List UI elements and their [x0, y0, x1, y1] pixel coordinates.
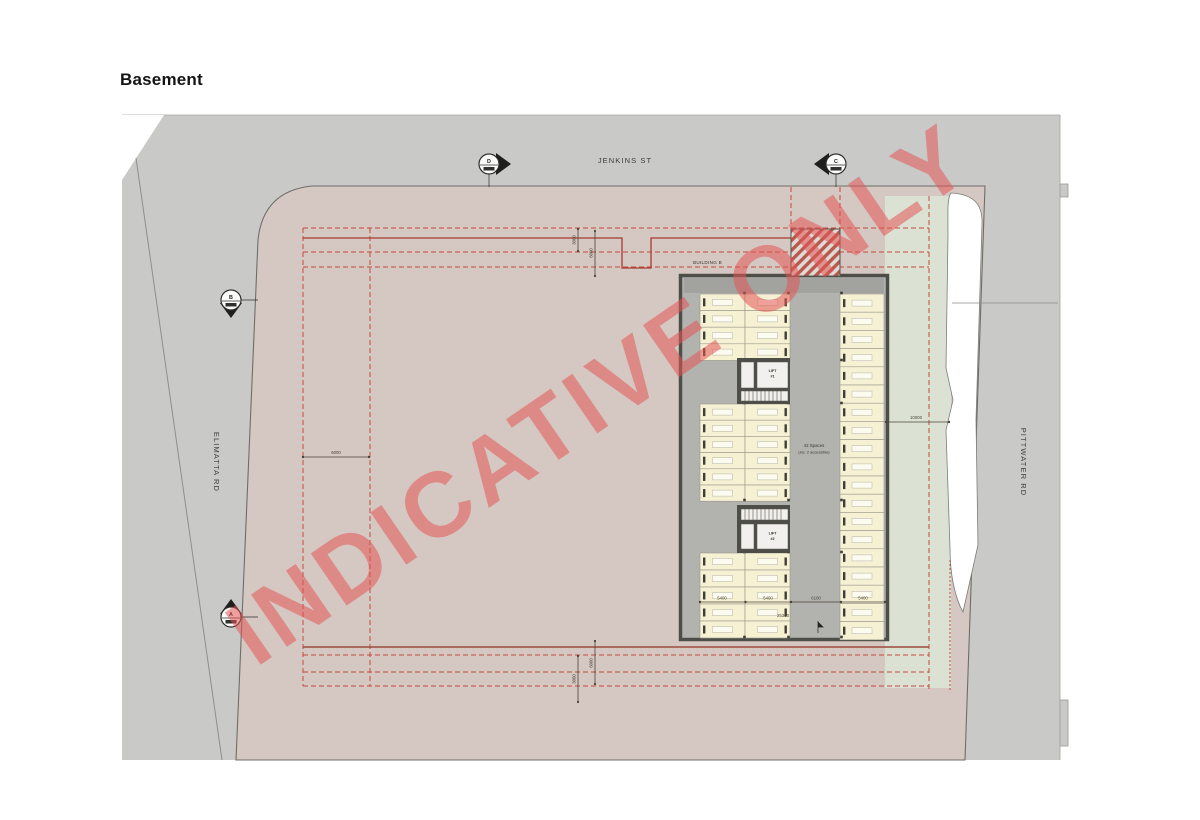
bay-marking — [713, 559, 733, 565]
wheel-stop — [843, 408, 845, 416]
road-edge-tab — [1060, 700, 1068, 746]
wheel-stop — [703, 558, 705, 566]
bay-marking — [758, 627, 778, 633]
marker-letter: A — [229, 612, 233, 618]
wheel-stop — [785, 408, 787, 416]
building-b: LIFT #1 LIFT #2 BUILDING B 42 Spaces (in… — [681, 229, 888, 640]
wheel-stop — [703, 575, 705, 583]
marker-letter: B — [229, 295, 233, 301]
bay-marking — [852, 428, 872, 434]
dim-stall-1: 5400 — [717, 596, 727, 601]
bay-marking — [758, 299, 778, 305]
marker-sheet-ref — [484, 167, 495, 171]
bay-marking — [758, 474, 778, 480]
column-dot — [840, 402, 843, 405]
marker-sheet-ref — [226, 620, 237, 624]
wheel-stop — [785, 575, 787, 583]
wheel-stop — [703, 332, 705, 340]
bay-marking — [852, 555, 872, 561]
wheel-stop — [785, 298, 787, 306]
dim-east-strip: 10000 — [910, 415, 923, 420]
road-label-elimatta: ELIMATTA RD — [212, 432, 221, 492]
bay-marking — [852, 318, 872, 324]
column-dot — [787, 499, 790, 502]
wheel-stop — [843, 372, 845, 380]
marker-sheet-ref — [226, 303, 237, 307]
wheel-stop — [843, 463, 845, 471]
bay-marking — [852, 537, 872, 543]
road-label-pittwater: PITTWATER RD — [1019, 428, 1028, 497]
building-label: BUILDING B — [693, 260, 722, 265]
bay-marking — [852, 519, 872, 525]
bay-marking — [852, 500, 872, 506]
wheel-stop — [703, 315, 705, 323]
wheel-stop — [843, 499, 845, 507]
lift-2-number: #2 — [770, 537, 774, 541]
bay-marking — [713, 442, 733, 448]
wheel-stop — [843, 354, 845, 362]
wheel-stop — [703, 473, 705, 481]
wheel-stop — [703, 298, 705, 306]
bay-marking — [852, 355, 872, 361]
wheel-stop — [843, 481, 845, 489]
bay-marking — [713, 333, 733, 339]
wheel-stop — [843, 609, 845, 617]
wheel-stop — [703, 424, 705, 432]
core-lift-2: LIFT #2 — [737, 505, 790, 553]
bay-marking — [713, 299, 733, 305]
bay-marking — [713, 576, 733, 582]
wheel-stop — [843, 572, 845, 580]
dim-west-setback: 6000 — [331, 450, 341, 455]
lift-2-label: LIFT — [769, 532, 778, 536]
bay-marking — [852, 610, 872, 616]
dim-south-b: 3000 — [572, 674, 577, 684]
bay-marking — [852, 573, 872, 579]
site-plan: LIFT #1 LIFT #2 BUILDING B 42 Spaces (in… — [0, 0, 1200, 820]
bay-marking — [713, 610, 733, 616]
dim-total-width: 25300 — [777, 613, 790, 618]
marker-letter: D — [487, 159, 491, 165]
wheel-stop — [703, 457, 705, 465]
lift-1-label: LIFT — [769, 369, 778, 373]
bay-marking — [852, 300, 872, 306]
bay-marking — [713, 458, 733, 464]
wheel-stop — [785, 424, 787, 432]
bay-marking — [852, 482, 872, 488]
column-dot — [840, 636, 843, 639]
parking-accessible-note: (inc. 2 accessible) — [798, 450, 830, 455]
bay-marking — [758, 610, 778, 616]
ramp-hatch — [791, 229, 840, 276]
column-dot — [743, 499, 746, 502]
core-lift-1: LIFT #1 — [737, 358, 790, 404]
wheel-stop — [703, 348, 705, 356]
wheel-stop — [703, 489, 705, 497]
wheel-stop — [843, 336, 845, 344]
wheel-stop — [785, 457, 787, 465]
bay-marking — [713, 474, 733, 480]
wheel-stop — [785, 315, 787, 323]
bay-marking — [713, 425, 733, 431]
wheel-stop — [703, 408, 705, 416]
bay-marking — [852, 337, 872, 343]
bay-marking — [758, 316, 778, 322]
bay-marking — [852, 409, 872, 415]
dim-aisle: 6100 — [811, 596, 821, 601]
dim-north-b: 6000 — [589, 248, 594, 258]
bay-marking — [758, 458, 778, 464]
wheel-stop — [843, 627, 845, 635]
marker-letter: C — [834, 159, 838, 165]
wheel-stop — [843, 590, 845, 598]
column-dot — [840, 292, 843, 295]
dim-south-a: 6000 — [589, 658, 594, 668]
column-dot — [743, 636, 746, 639]
wheel-stop — [843, 518, 845, 526]
wheel-stop — [843, 445, 845, 453]
bay-marking — [758, 333, 778, 339]
column-dot — [840, 551, 843, 554]
bay-marking — [713, 349, 733, 355]
wheel-stop — [785, 441, 787, 449]
wheel-stop — [843, 554, 845, 562]
wheel-stop — [785, 592, 787, 600]
bay-marking — [758, 425, 778, 431]
bay-marking — [758, 409, 778, 415]
bay-marking — [758, 576, 778, 582]
column-dot — [787, 636, 790, 639]
wheel-stop — [843, 427, 845, 435]
wheel-stop — [843, 390, 845, 398]
building-entry-strip — [684, 278, 884, 293]
wheel-stop — [843, 536, 845, 544]
dim-north-a: 3000 — [572, 235, 577, 245]
bay-marking — [758, 442, 778, 448]
wheel-stop — [785, 626, 787, 634]
bay-marking — [852, 464, 872, 470]
wheel-stop — [785, 348, 787, 356]
lift-1-number: #1 — [770, 375, 774, 379]
bay-marking — [758, 490, 778, 496]
bay-marking — [852, 391, 872, 397]
parking-count-note: 42 Spaces — [804, 443, 826, 448]
bay-marking — [713, 627, 733, 633]
bay-marking — [852, 446, 872, 452]
wheel-stop — [785, 489, 787, 497]
dim-stall-3: 5400 — [858, 596, 868, 601]
wheel-stop — [785, 332, 787, 340]
wheel-stop — [843, 299, 845, 307]
wheel-stop — [703, 592, 705, 600]
road-label-jenkins: JENKINS ST — [598, 156, 652, 165]
column-dot — [840, 499, 843, 502]
bay-marking — [852, 628, 872, 634]
road-edge-tab — [1060, 184, 1068, 197]
column-dot — [840, 359, 843, 362]
bay-marking — [852, 373, 872, 379]
bay-marking — [713, 409, 733, 415]
landscape-area — [885, 196, 951, 688]
marker-sheet-ref — [831, 167, 842, 171]
wheel-stop — [703, 626, 705, 634]
wheel-stop — [703, 609, 705, 617]
wheel-stop — [785, 558, 787, 566]
wheel-stop — [843, 317, 845, 325]
drawing-sheet: Basement — [0, 0, 1200, 820]
bay-marking — [758, 349, 778, 355]
bay-marking — [713, 490, 733, 496]
bay-marking — [758, 559, 778, 565]
column-dot — [787, 292, 790, 295]
dim-stall-2: 5400 — [763, 596, 773, 601]
wheel-stop — [785, 473, 787, 481]
bay-marking — [713, 316, 733, 322]
wheel-stop — [703, 441, 705, 449]
column-dot — [743, 292, 746, 295]
